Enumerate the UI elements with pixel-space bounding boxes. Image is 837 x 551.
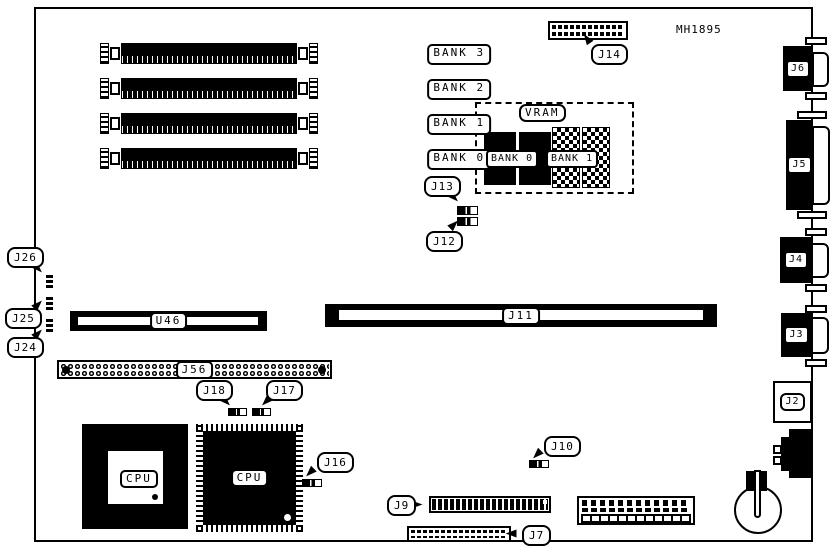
- simm-endcap-icon: [100, 78, 109, 99]
- vram-bank1-label: BANK 1: [546, 150, 598, 168]
- j4-label: J4: [784, 251, 808, 269]
- chip-u46: U46: [70, 311, 267, 331]
- callout-j13-label: J13: [424, 176, 461, 197]
- callout-j9-label: J9: [387, 495, 416, 516]
- dsub-connector: [811, 317, 829, 354]
- callout-j17-label: J17: [266, 380, 303, 401]
- simm-contact-row: [121, 43, 297, 64]
- simm-bank-label: BANK 1: [427, 114, 491, 135]
- callout-j25-label: J25: [5, 308, 42, 329]
- jumper-j16: [302, 479, 322, 487]
- simm-latch-icon: [110, 82, 120, 95]
- part-number-label: MH1895: [676, 23, 722, 36]
- callout-j16-label: J16: [317, 452, 354, 473]
- simm-endcap-icon: [309, 113, 318, 134]
- mount-tab: [797, 211, 827, 219]
- simm-latch-icon: [298, 117, 308, 130]
- u46-label: U46: [150, 312, 188, 330]
- simm-contact-row: [121, 78, 297, 99]
- simm-endcap-icon: [309, 78, 318, 99]
- connector-j6: J6: [783, 46, 813, 91]
- mount-tab: [805, 228, 827, 236]
- end-pin-icon: [543, 500, 547, 504]
- simm-slot-bank1: BANK 1: [100, 113, 382, 134]
- pin1-dot-icon: [62, 366, 70, 374]
- connector-j9: [429, 496, 551, 513]
- callout-j18-label: J18: [196, 380, 233, 401]
- power-pin-row: [582, 508, 690, 512]
- simm-endcap-icon: [100, 43, 109, 64]
- simm-latch-icon: [110, 117, 120, 130]
- jumper-j17: [252, 408, 271, 416]
- battery-clip-arm-icon: [754, 470, 761, 518]
- cpu-socket-label: CPU: [120, 470, 158, 488]
- simm-contact-row: [121, 113, 297, 134]
- connector-j7: [407, 526, 511, 542]
- pin1-dot-icon: [152, 494, 158, 500]
- mount-tab: [805, 92, 827, 100]
- cpu-qfp-label: CPU: [231, 469, 269, 487]
- dsub-connector: [812, 52, 829, 87]
- jumper-j26: [45, 272, 54, 289]
- callout-j24-label: J24: [7, 337, 44, 358]
- pin1-dot-icon: [284, 514, 291, 521]
- cpu-socket: CPU: [82, 424, 188, 529]
- motherboard-layout-diagram: MH1895 BANK 3 BANK 2 BANK 1 BANK 0 J1: [0, 0, 837, 551]
- connector-j2: J2: [773, 381, 812, 423]
- j6-label: J6: [786, 60, 810, 78]
- simm-slot-bank0: BANK 0: [100, 148, 382, 169]
- connector-j56: J56: [57, 360, 332, 379]
- callout-j14-label: J14: [591, 44, 628, 65]
- j56-label: J56: [176, 361, 214, 379]
- callout-tail-icon: [506, 530, 517, 538]
- simm-contact-row: [121, 148, 297, 169]
- vram-title-label: VRAM: [519, 104, 566, 122]
- cpu-qfp: CPU: [196, 424, 303, 532]
- mount-tab: [797, 111, 827, 119]
- dsub-connector: [811, 243, 829, 278]
- simm-bank-label: BANK 0: [427, 149, 491, 170]
- jumper-j10: [529, 460, 549, 468]
- simm-slot-bank3: BANK 3: [100, 43, 382, 64]
- simm-endcap-icon: [100, 148, 109, 169]
- simm-latch-icon: [110, 152, 120, 165]
- simm-endcap-icon: [309, 148, 318, 169]
- jumper-j13: [457, 206, 478, 215]
- j3-label: J3: [784, 326, 808, 344]
- callout-j10-label: J10: [544, 436, 581, 457]
- j11-label: J11: [502, 307, 540, 325]
- simm-endcap-icon: [309, 43, 318, 64]
- end-dot-icon: [318, 366, 326, 374]
- mount-tab: [805, 37, 827, 45]
- simm-endcap-icon: [100, 113, 109, 134]
- callout-j7-label: J7: [522, 525, 551, 546]
- dsub-connector: [812, 126, 830, 205]
- simm-latch-icon: [298, 47, 308, 60]
- din-pin-icon: [773, 445, 782, 454]
- callout-j12-label: J12: [426, 231, 463, 252]
- din-pin-icon: [773, 456, 782, 465]
- connector-j4: J4: [780, 237, 812, 283]
- simm-bank-label: BANK 3: [427, 44, 491, 65]
- mount-tab: [805, 359, 827, 367]
- jumper-j18: [228, 408, 247, 416]
- j5-label: J5: [787, 156, 811, 174]
- mount-tab: [805, 284, 827, 292]
- vram-bank0-label: BANK 0: [486, 150, 538, 168]
- power-connector: [577, 496, 695, 525]
- simm-latch-icon: [298, 152, 308, 165]
- simm-slot-bank2: BANK 2: [100, 78, 382, 99]
- mount-tab: [805, 305, 827, 313]
- connector-j3: J3: [781, 313, 812, 357]
- jumper-j12: [457, 217, 478, 226]
- jumper-j24: [45, 316, 54, 333]
- power-pin-row: [581, 514, 691, 523]
- connector-j5: J5: [786, 120, 813, 210]
- din-connector: [789, 429, 813, 478]
- simm-latch-icon: [110, 47, 120, 60]
- simm-latch-icon: [298, 82, 308, 95]
- callout-j26-label: J26: [7, 247, 44, 268]
- simm-bank-label: BANK 2: [427, 79, 491, 100]
- din-connector-step: [781, 437, 791, 471]
- jumper-j25: [45, 294, 54, 311]
- slot-j11: J11: [325, 304, 717, 327]
- power-pin-row: [582, 500, 690, 506]
- j2-label: J2: [780, 393, 804, 411]
